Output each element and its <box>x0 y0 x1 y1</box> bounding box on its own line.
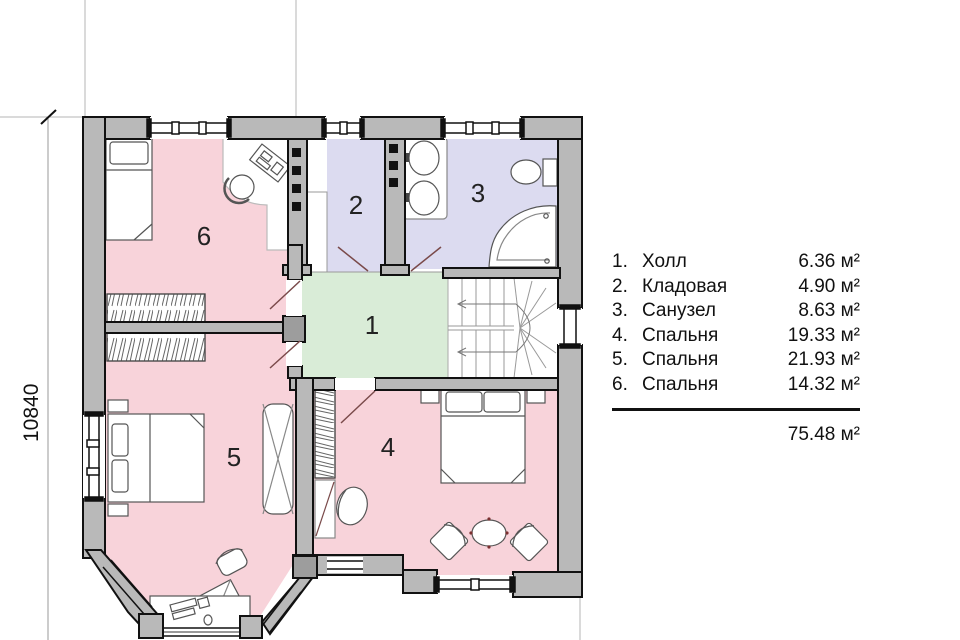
legend-item: 4. Спальня 19.33 м² <box>612 324 860 349</box>
legend-item-area: 21.93 м² <box>788 348 860 373</box>
legend-item-area: 4.90 м² <box>798 275 860 300</box>
legend-item-number: 6. <box>612 373 642 398</box>
stair-floor <box>448 278 558 378</box>
floor-plan-page: 10840 <box>0 0 960 640</box>
legend-item-area: 8.63 м² <box>798 299 860 324</box>
room-label-bathroom: 3 <box>471 178 485 208</box>
legend-item-number: 1. <box>612 250 642 275</box>
legend-item-name: Кладовая <box>642 275 798 300</box>
desk-chair <box>230 175 254 199</box>
legend-item-number: 4. <box>612 324 642 349</box>
legend-item: 5. Спальня 21.93 м² <box>612 348 860 373</box>
nightstand <box>108 504 128 516</box>
legend-item: 1. Холл 6.36 м² <box>612 250 860 275</box>
legend-item: 6. Спальня 14.32 м² <box>612 373 860 398</box>
legend-item-name: Холл <box>642 250 798 275</box>
room-label-hall: 1 <box>365 310 379 340</box>
toilet-tank <box>543 159 557 186</box>
legend-item-number: 3. <box>612 299 642 324</box>
room-label-storage: 2 <box>349 190 363 220</box>
dimension-value: 10840 <box>20 384 43 442</box>
nightstand <box>108 400 128 412</box>
bay-post <box>139 614 163 638</box>
legend-item-name: Спальня <box>642 348 788 373</box>
legend-item-number: 5. <box>612 348 642 373</box>
nightstand <box>527 389 545 403</box>
coffee-table <box>472 520 506 546</box>
legend-item-area: 14.32 м² <box>788 373 860 398</box>
toilet <box>511 160 541 184</box>
legend-divider <box>612 408 860 411</box>
legend-item-name: Санузел <box>642 299 798 324</box>
storage-shelf <box>307 192 327 272</box>
legend-item-area: 6.36 м² <box>798 250 860 275</box>
room-legend: 1. Холл 6.36 м² 2. Кладовая 4.90 м² 3. С… <box>612 250 860 446</box>
room-label-bedroom6: 6 <box>197 221 211 251</box>
legend-item-name: Спальня <box>642 324 788 349</box>
legend-item: 3. Санузел 8.63 м² <box>612 299 860 324</box>
legend-item-area: 19.33 м² <box>788 324 860 349</box>
room-label-bedroom5: 5 <box>227 442 241 472</box>
room-label-bedroom4: 4 <box>381 432 395 462</box>
sink <box>409 141 439 175</box>
sink <box>409 181 439 215</box>
legend-item-name: Спальня <box>642 373 788 398</box>
legend-item-number: 2. <box>612 275 642 300</box>
legend-total-area: 75.48 м² <box>612 424 860 446</box>
dimension-left: 10840 <box>20 110 56 640</box>
legend-item: 2. Кладовая 4.90 м² <box>612 275 860 300</box>
nightstand <box>421 389 439 403</box>
bay-post <box>240 616 262 638</box>
